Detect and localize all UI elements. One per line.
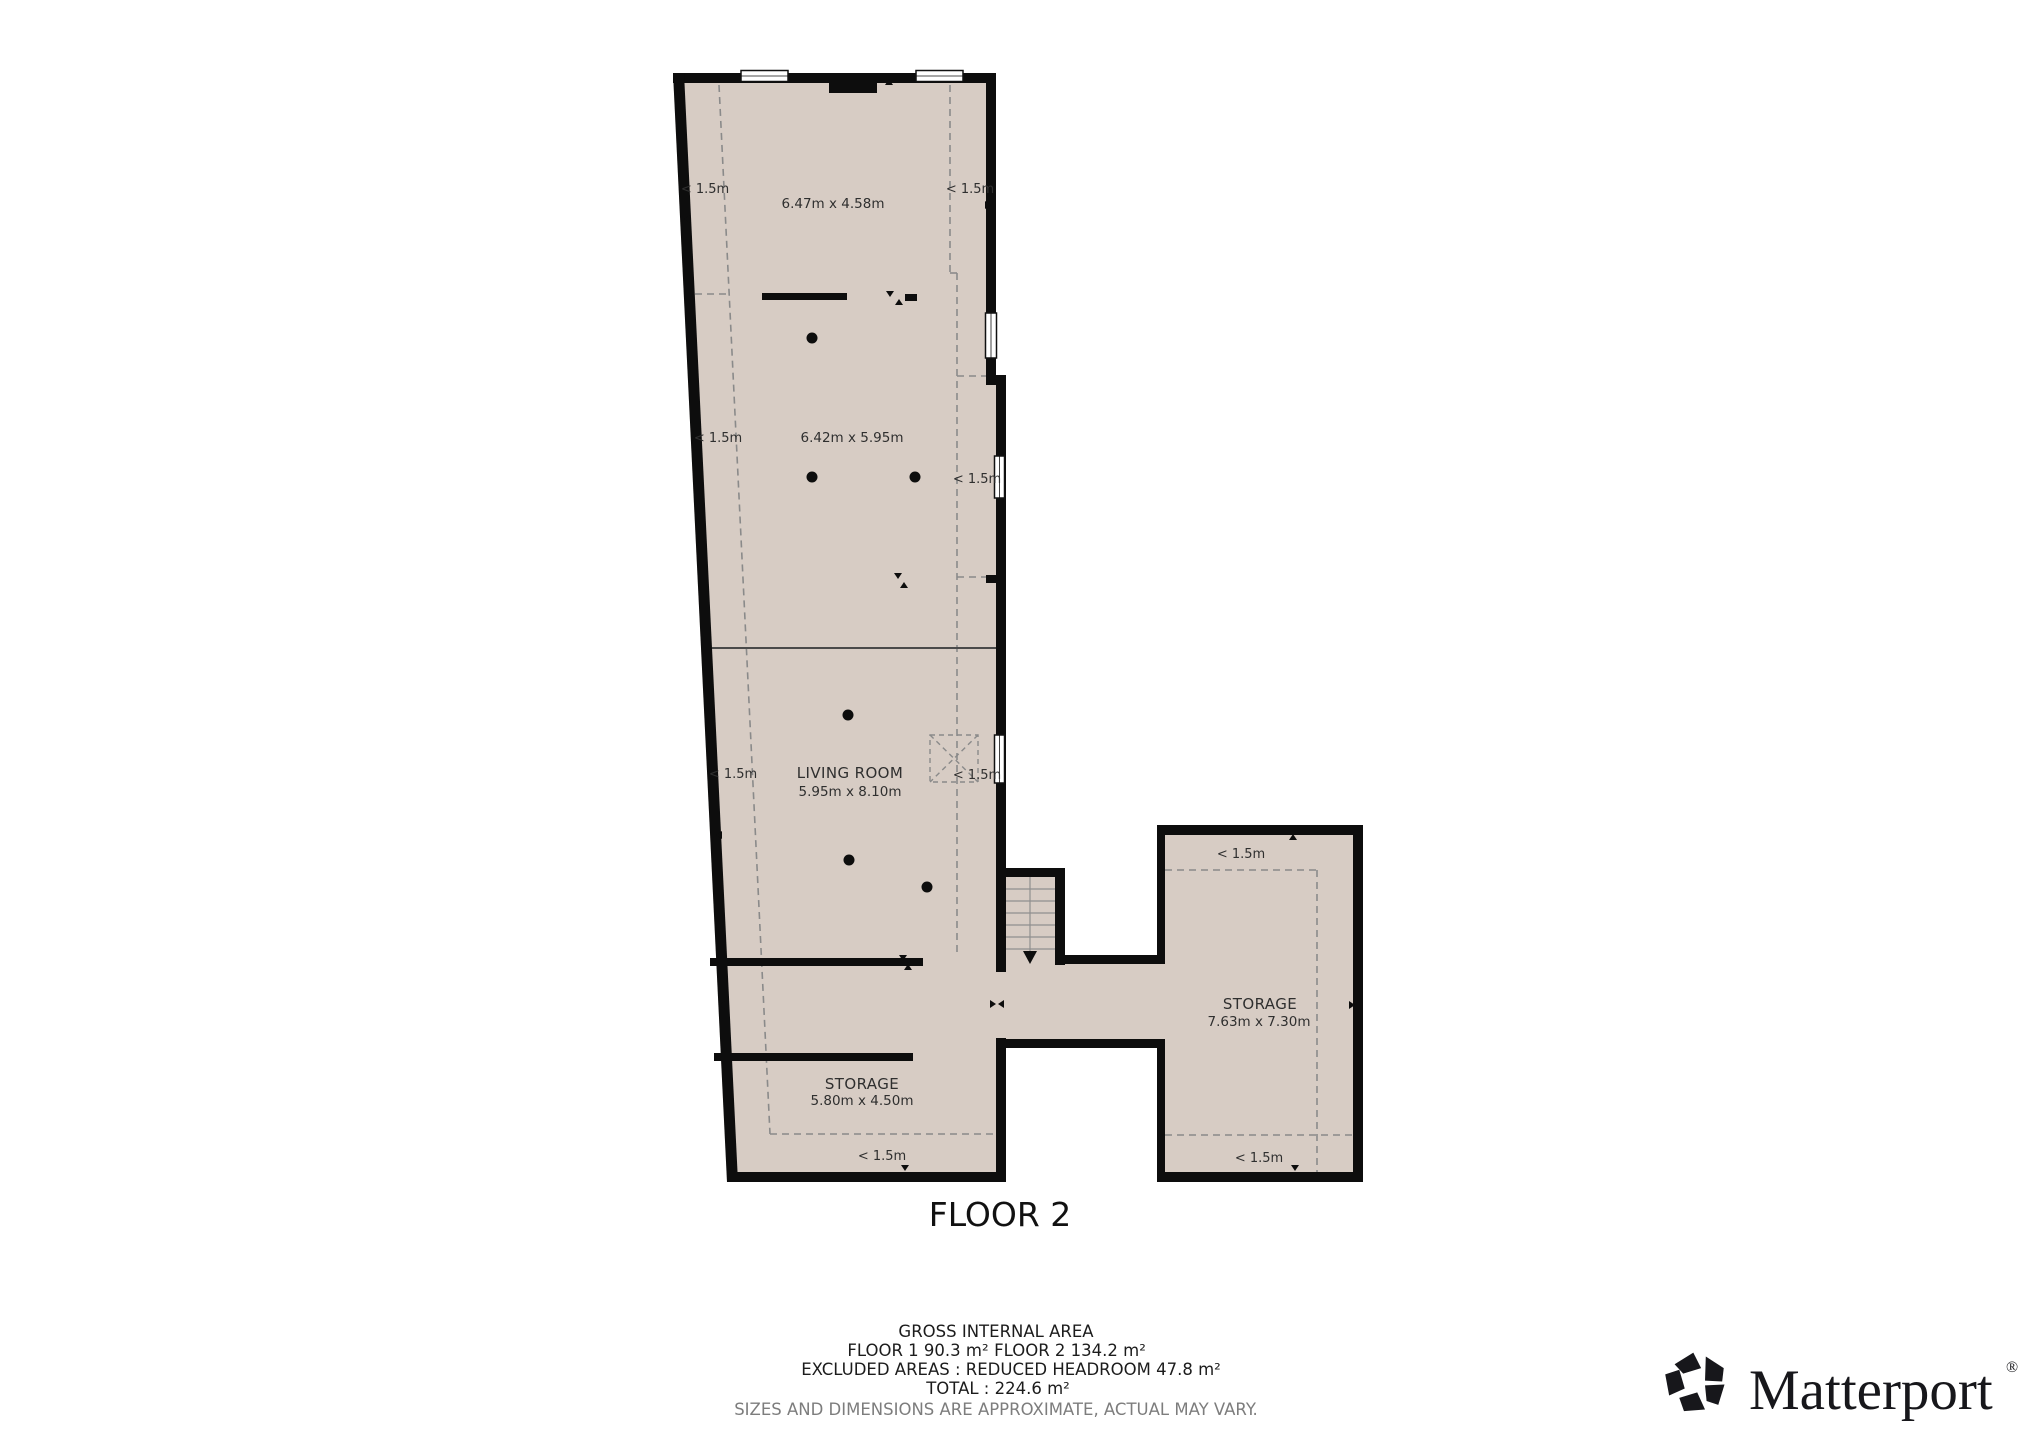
interior-wall-top <box>762 293 847 300</box>
headroom-label: < 1.5m <box>1235 1151 1283 1166</box>
column-dot <box>910 472 921 483</box>
floor-plan-page: 6.47m x 4.58m < 1.5m < 1.5m 6.42m x 5.95… <box>0 0 2036 1440</box>
storage-left-wall-lower <box>1157 1039 1165 1182</box>
floor2-area: FLOOR 2 134.2 m² <box>994 1341 1146 1360</box>
excluded-areas: EXCLUDED AREAS : REDUCED HEADROOM 47.8 m… <box>801 1360 1221 1379</box>
headroom-label: < 1.5m <box>953 768 1001 783</box>
column-dot <box>807 472 818 483</box>
room-dims-top: 6.47m x 4.58m <box>782 196 885 212</box>
column-dot <box>844 855 855 866</box>
matterport-wordmark: Matterport <box>1749 1359 1993 1422</box>
headroom-label: < 1.5m <box>694 431 742 446</box>
column-dot <box>922 882 933 893</box>
corridor-top-wall <box>1055 955 1165 964</box>
storage-left-wall-upper <box>1157 825 1165 964</box>
headroom-label: < 1.5m <box>946 182 994 197</box>
room-dims-middle: 6.42m x 5.95m <box>801 430 904 446</box>
column-dot <box>843 710 854 721</box>
storage-bottom-wall <box>1157 1172 1363 1182</box>
corridor-floor <box>996 955 1165 1048</box>
gross-internal-area: GROSS INTERNAL AREA <box>898 1322 1094 1341</box>
storage-top-wall <box>1157 825 1363 835</box>
area-summary: GROSS INTERNAL AREA FLOOR 1 90.3 m² FLOO… <box>734 1322 1258 1419</box>
room-dims-storage-right: 7.63m x 7.30m <box>1208 1014 1311 1030</box>
disclaimer: SIZES AND DIMENSIONS ARE APPROXIMATE, AC… <box>734 1400 1258 1419</box>
room-dims-living: 5.95m x 8.10m <box>799 784 902 800</box>
floor1-area: FLOOR 1 90.3 m² <box>847 1341 988 1360</box>
stairs-top-wall <box>996 868 1065 877</box>
wall-stub <box>986 575 996 583</box>
bottom-wall <box>727 1172 1006 1182</box>
storage-right-wall <box>1353 825 1363 1182</box>
room-dims-storage-bottom: 5.80m x 4.50m <box>811 1093 914 1109</box>
interior-wall-low <box>714 1053 913 1061</box>
headroom-label: < 1.5m <box>709 767 757 782</box>
headroom-label: < 1.5m <box>858 1149 906 1164</box>
interior-wall-top-b <box>905 294 917 301</box>
matterport-pinwheel-icon <box>1665 1353 1724 1412</box>
floor-plan-svg: 6.47m x 4.58m < 1.5m < 1.5m 6.42m x 5.95… <box>0 0 2036 1440</box>
total-area: TOTAL : 224.6 m² <box>925 1379 1070 1398</box>
room-label-living: LIVING ROOM <box>797 764 903 782</box>
headroom-label: < 1.5m <box>681 182 729 197</box>
matterport-logo: Matterport ® <box>1665 1353 2018 1422</box>
interior-wall-mid <box>710 958 923 966</box>
chimney <box>829 75 877 93</box>
stairs-right-wall <box>1055 868 1065 965</box>
room-label-storage-right: STORAGE <box>1223 995 1297 1013</box>
room-label-storage-bottom: STORAGE <box>825 1075 899 1093</box>
corridor-bottom-wall <box>996 1039 1165 1048</box>
right-wall-lower <box>996 1038 1006 1182</box>
column-dot <box>807 333 818 344</box>
headroom-label: < 1.5m <box>953 472 1001 487</box>
headroom-label: < 1.5m <box>1217 847 1265 862</box>
floor-title: FLOOR 2 <box>929 1195 1072 1234</box>
registered-mark: ® <box>2006 1359 2018 1376</box>
